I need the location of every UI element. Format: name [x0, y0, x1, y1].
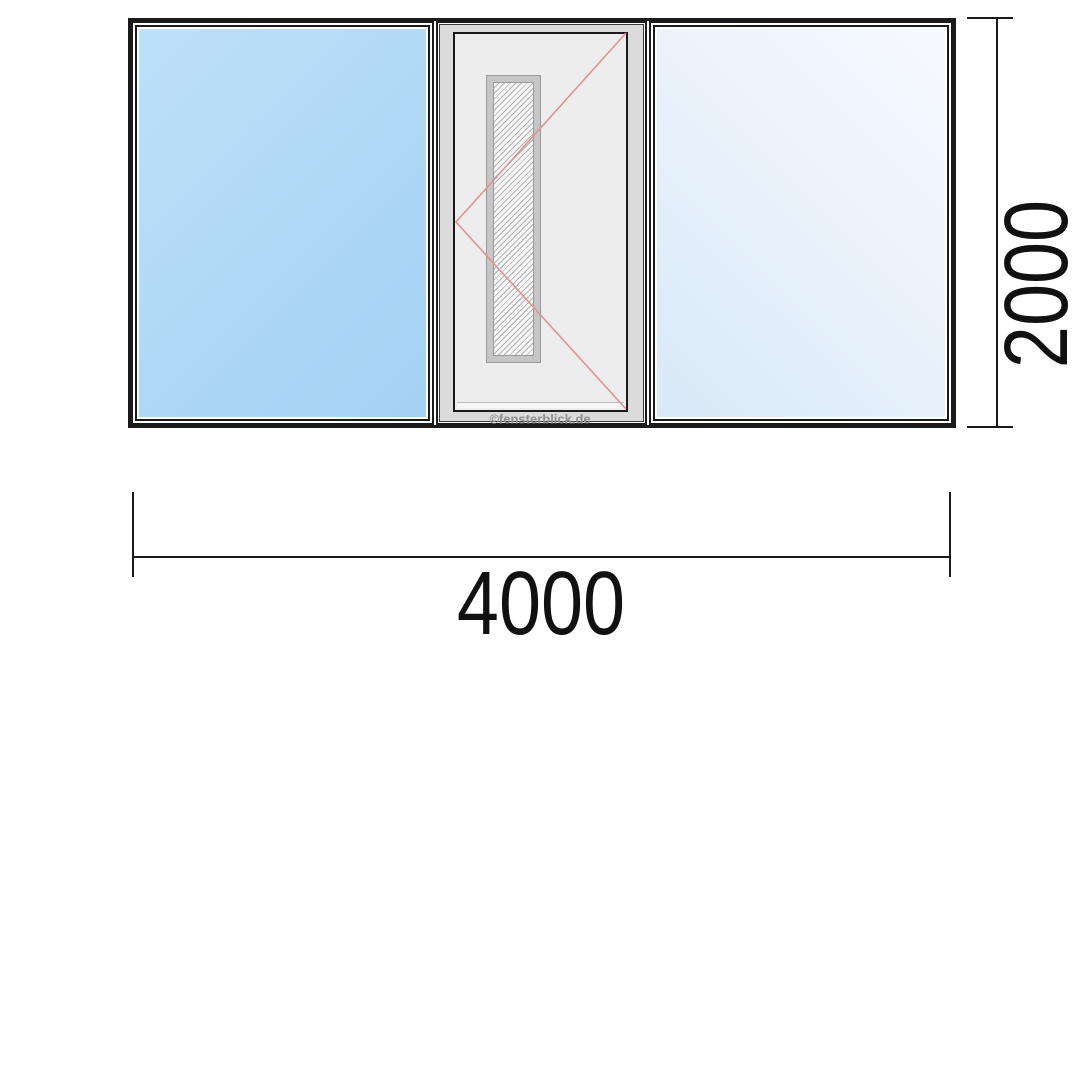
width-dimension-tick-right [949, 492, 951, 577]
door-panel [436, 21, 647, 425]
height-dimension-tick-bottom [967, 426, 1013, 428]
door-leaf [453, 32, 628, 412]
width-dimension-tick-left [132, 492, 134, 577]
watermark-text: ©fensterblick.de [489, 412, 590, 427]
window-assembly-frame [128, 18, 956, 428]
fixed-pane-right [649, 21, 953, 425]
height-dimension-label: 2000 [992, 200, 1080, 368]
door-glass-strip-hatch [493, 82, 534, 356]
height-dimension-tick-top [967, 17, 1013, 19]
fixed-pane-right-frame [653, 25, 949, 421]
door-glass-strip [486, 75, 541, 363]
door-frame-surround [439, 24, 644, 422]
fixed-pane-left-frame [135, 25, 430, 421]
fixed-pane-left-glass [139, 29, 426, 417]
width-dimension-label: 4000 [457, 559, 625, 649]
fixed-pane-left [131, 21, 434, 425]
door-threshold [457, 402, 624, 408]
fixed-pane-right-glass [657, 29, 945, 417]
drawing-canvas: ©fensterblick.de 2000 4000 [0, 0, 1080, 1080]
